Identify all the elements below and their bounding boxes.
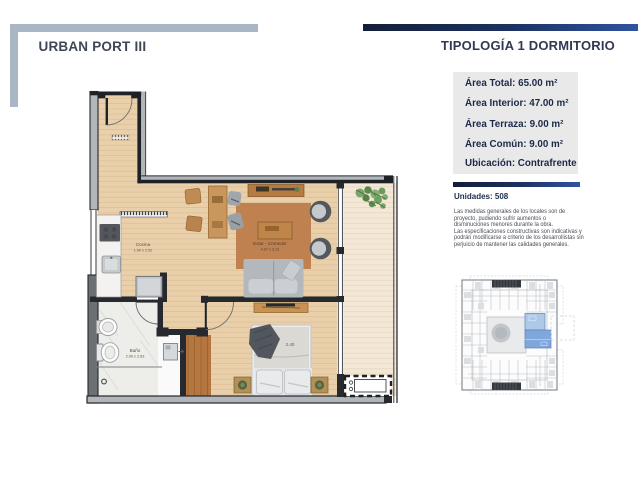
svg-text:Baño: Baño — [130, 348, 141, 353]
svg-text:1.90 x 2.52: 1.90 x 2.52 — [134, 249, 153, 253]
svg-text:Cocina: Cocina — [136, 242, 151, 247]
svg-text:2.40: 2.40 — [286, 342, 295, 347]
svg-text:4.97 x 3.12: 4.97 x 3.12 — [261, 248, 280, 252]
svg-text:2.09 x 2.63: 2.09 x 2.63 — [126, 355, 145, 359]
svg-text:Estar - Comedor: Estar - Comedor — [253, 241, 287, 246]
